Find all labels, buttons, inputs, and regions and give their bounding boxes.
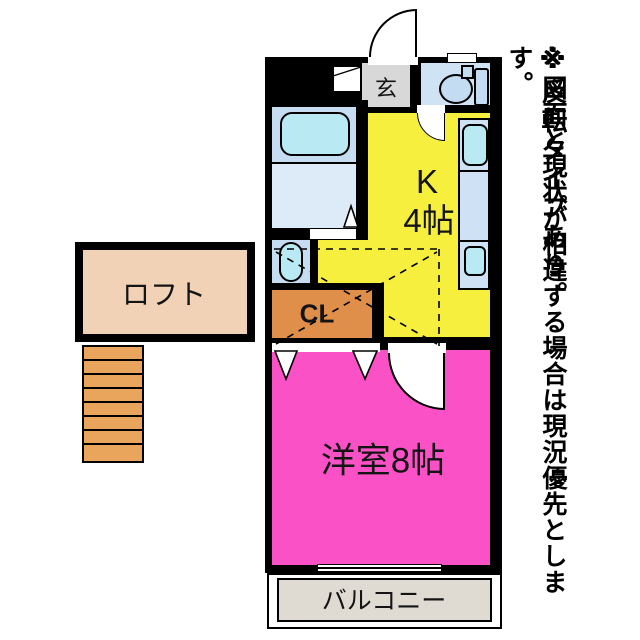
- bathroom-kitchen-wall: [356, 100, 368, 240]
- closet-label: CL: [300, 299, 335, 330]
- loft-label: ロフト: [122, 273, 206, 313]
- washer-right-wall: [310, 240, 318, 285]
- counter-divider-1: [458, 170, 490, 172]
- entrance-door-arc: [369, 9, 417, 57]
- kitchen-stove-icon: [464, 246, 486, 276]
- closet-right-wall: [372, 290, 384, 343]
- room-door-opening: [388, 343, 446, 353]
- entrance-door-opening: [368, 57, 418, 65]
- staircase: [82, 345, 140, 459]
- entrance-label: 玄: [375, 71, 397, 103]
- bathtub-icon: [280, 112, 350, 156]
- toilet-window: [447, 53, 477, 63]
- washing-machine-icon: [279, 242, 303, 282]
- western-room-label: 洋室8帖: [321, 433, 445, 484]
- closet-top-wall: [272, 283, 384, 290]
- floor-plan: 玄 K 4帖 CL 洋室8帖 ロフト バルコニー ※反転タイプあり。 ※図面と現…: [0, 0, 640, 640]
- bathroom-lower: [272, 162, 356, 228]
- kitchen-label-line2: 4帖: [403, 194, 454, 242]
- stair-step: [82, 443, 144, 463]
- balcony-label: バルコニー: [322, 581, 447, 617]
- shoe-box: [332, 65, 362, 93]
- balcony-window-mid: [318, 567, 441, 569]
- note-plan-disclaimer: ※図面と現状が相違する場合は現況優先とします。: [502, 45, 570, 635]
- kitchen-sink-icon: [462, 124, 488, 166]
- closet-front-opening: [272, 343, 380, 352]
- toilet-tank-icon: [474, 68, 489, 106]
- bathroom-door-opening: [310, 229, 356, 239]
- counter-divider-2: [458, 240, 490, 242]
- toilet-lid-icon: [461, 65, 474, 79]
- toilet-door-opening: [417, 105, 445, 113]
